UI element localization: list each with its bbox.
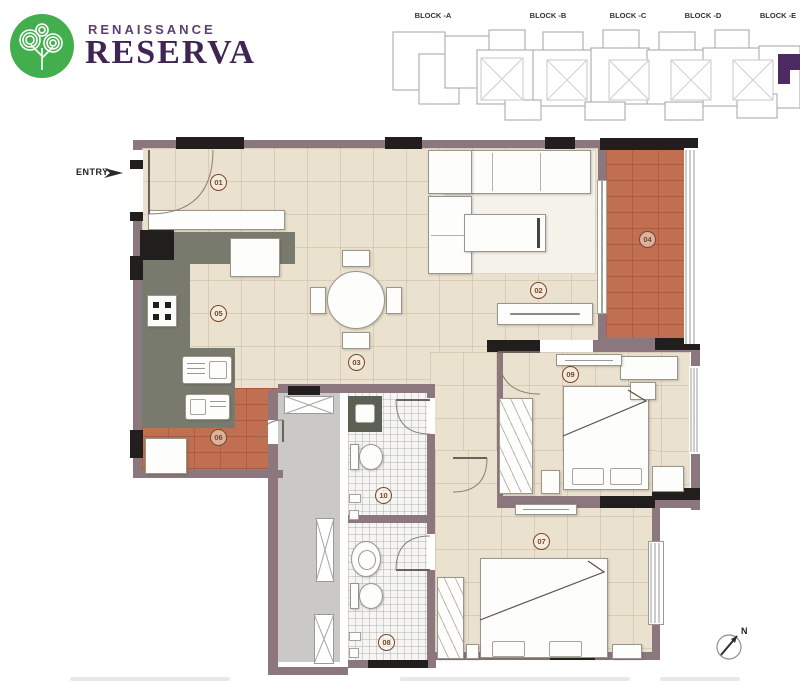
- railing-lines: [651, 150, 697, 623]
- cropped-caption-remnant: [660, 677, 740, 681]
- bed-fold-lines: [480, 390, 646, 620]
- floor-plan-page: RENAISSANCE RESERVA: [0, 0, 800, 683]
- plan-linework-overlay: N: [0, 0, 800, 683]
- north-label: N: [741, 626, 748, 636]
- cropped-caption-remnant: [70, 677, 230, 681]
- cropped-caption-remnant: [400, 677, 630, 681]
- entry-arrow-icon: [104, 168, 123, 178]
- north-compass-icon: N: [717, 626, 748, 659]
- door-swing-arc: [149, 150, 540, 570]
- door-leaf: [149, 150, 540, 570]
- shaft-cross-lines: [284, 396, 334, 664]
